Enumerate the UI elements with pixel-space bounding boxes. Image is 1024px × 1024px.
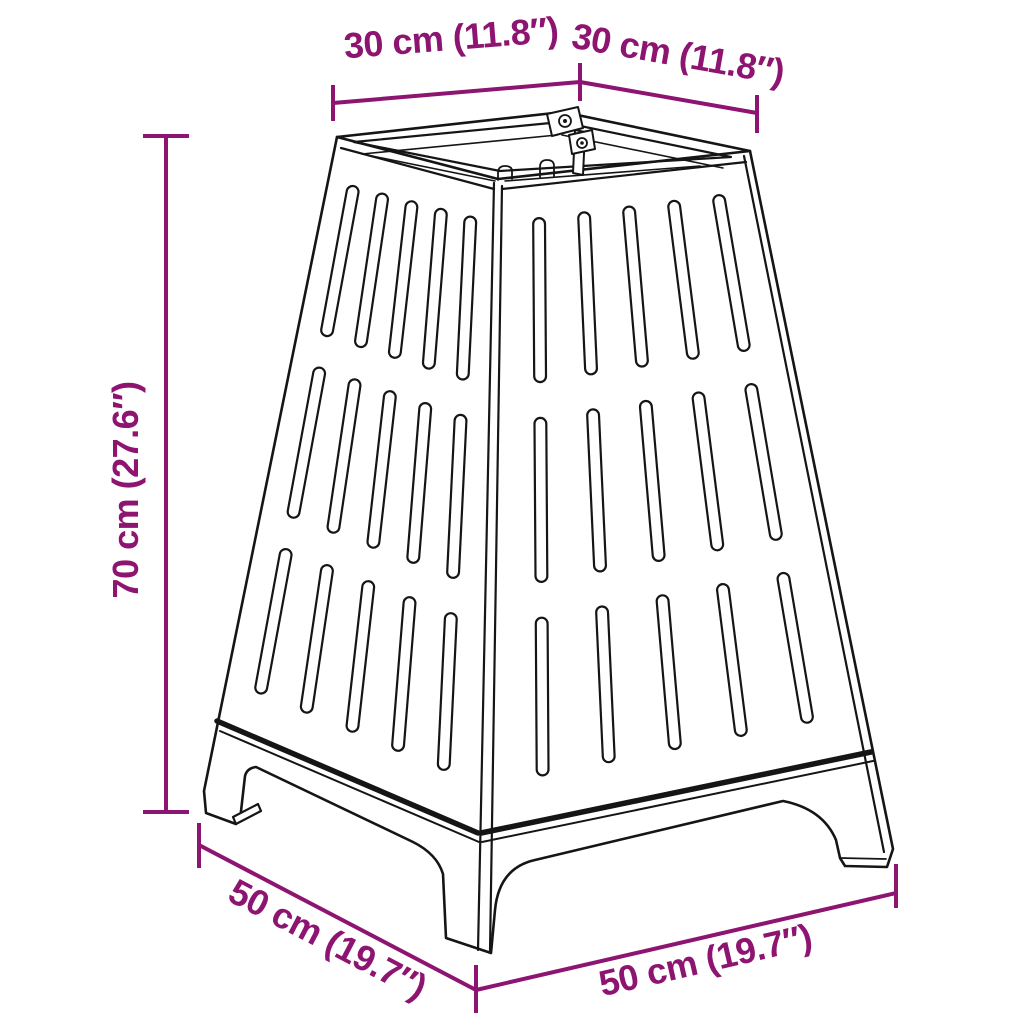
vent-slot [751, 390, 775, 534]
bracket-screw-bottom-dot [580, 141, 584, 145]
left-foot-flange [233, 804, 261, 824]
vent-slot [584, 218, 591, 368]
dim-line-top-depth [580, 82, 757, 133]
vent-slot [719, 201, 744, 345]
vent-slot [327, 192, 353, 330]
fire-basket-dimension-drawing: 30 cm (11.8″) 30 cm (11.8″) 70 cm (27.6″… [0, 0, 1024, 1024]
vent-slot [429, 215, 441, 363]
vent-slot [261, 555, 285, 688]
dim-label-base-depth: 50 cm (19.7″) [222, 871, 433, 1008]
vent-slot [663, 601, 675, 743]
vent-slot [784, 579, 807, 717]
dim-label-top-depth: 30 cm (11.8″) [569, 15, 788, 93]
vent-slot [629, 213, 642, 361]
vent-slot [602, 612, 609, 756]
vent-slot [542, 624, 543, 770]
ventilation-slots [261, 192, 807, 770]
body-outline [204, 112, 893, 953]
bracket-screw-top-dot [563, 119, 567, 123]
vent-slot [398, 603, 409, 745]
dim-label-top-width: 30 cm (11.8″) [342, 9, 559, 67]
vent-slot [413, 409, 425, 557]
right-foot-flange [840, 858, 886, 859]
front-corner-seam [478, 183, 502, 952]
dim-line-height [143, 136, 189, 812]
dim-line-base-depth [199, 823, 476, 1013]
dim-label-height: 70 cm (27.6″) [105, 382, 146, 599]
vent-slot [294, 374, 320, 512]
vent-slot [540, 424, 541, 576]
vent-slot [334, 385, 355, 527]
rim-front-edges [337, 137, 750, 179]
vent-slot [646, 407, 659, 555]
fire-basket-drawing [204, 107, 893, 953]
product-dimension-diagram: 30 cm (11.8″) 30 cm (11.8″) 70 cm (27.6″… [0, 0, 1024, 1024]
dim-label-base-width: 50 cm (19.7″) [595, 915, 816, 1004]
vent-slot [539, 224, 540, 376]
dim-line-top-width [333, 63, 580, 121]
vent-slot [361, 200, 382, 342]
